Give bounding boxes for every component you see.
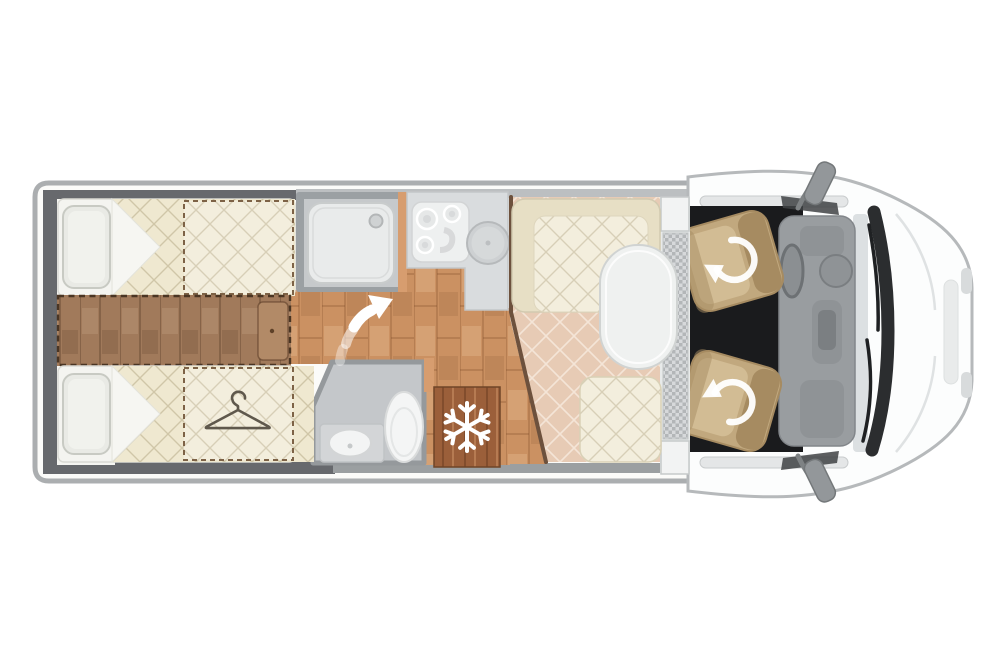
side-bench	[580, 377, 661, 462]
front-grille-notch-top	[961, 268, 972, 294]
center-step	[57, 295, 291, 366]
motorhome-floorplan	[0, 0, 1000, 667]
rear-bedroom	[57, 199, 314, 465]
shower-kitchen-wall	[398, 192, 407, 292]
entrance-cabinet-top	[661, 197, 689, 231]
entrance-cabinet-bottom	[661, 441, 689, 474]
dashboard-vent-bottom	[800, 380, 844, 438]
dashboard-vent-top	[800, 226, 844, 256]
twin-bed-top	[58, 199, 295, 296]
washroom	[313, 362, 424, 463]
shower-room	[296, 192, 404, 292]
washroom-fridge-wall	[424, 358, 434, 392]
basin-drain	[348, 444, 353, 449]
washbasin	[329, 430, 371, 457]
front-grille-notch-bottom	[961, 372, 972, 398]
shower-tray	[308, 203, 394, 283]
instrument-cluster	[820, 255, 852, 287]
rear-wall	[43, 190, 57, 474]
sink-drain	[486, 241, 491, 246]
step-knob	[270, 329, 274, 333]
wardrobe-area	[184, 368, 293, 460]
dinette	[511, 197, 677, 462]
hob-three-burner	[412, 202, 469, 262]
console-panel	[818, 310, 836, 350]
kitchen-sink	[467, 222, 509, 264]
cab	[673, 159, 972, 504]
overbed-area	[184, 201, 293, 294]
hood-center-band	[944, 280, 958, 384]
drain-icon	[370, 215, 383, 228]
steering-wheel	[781, 245, 803, 297]
dashboard	[779, 216, 855, 446]
fridge	[434, 387, 500, 467]
twin-bed-bottom	[58, 366, 314, 462]
step-wood	[57, 295, 291, 366]
floorplan-canvas	[0, 0, 1000, 667]
